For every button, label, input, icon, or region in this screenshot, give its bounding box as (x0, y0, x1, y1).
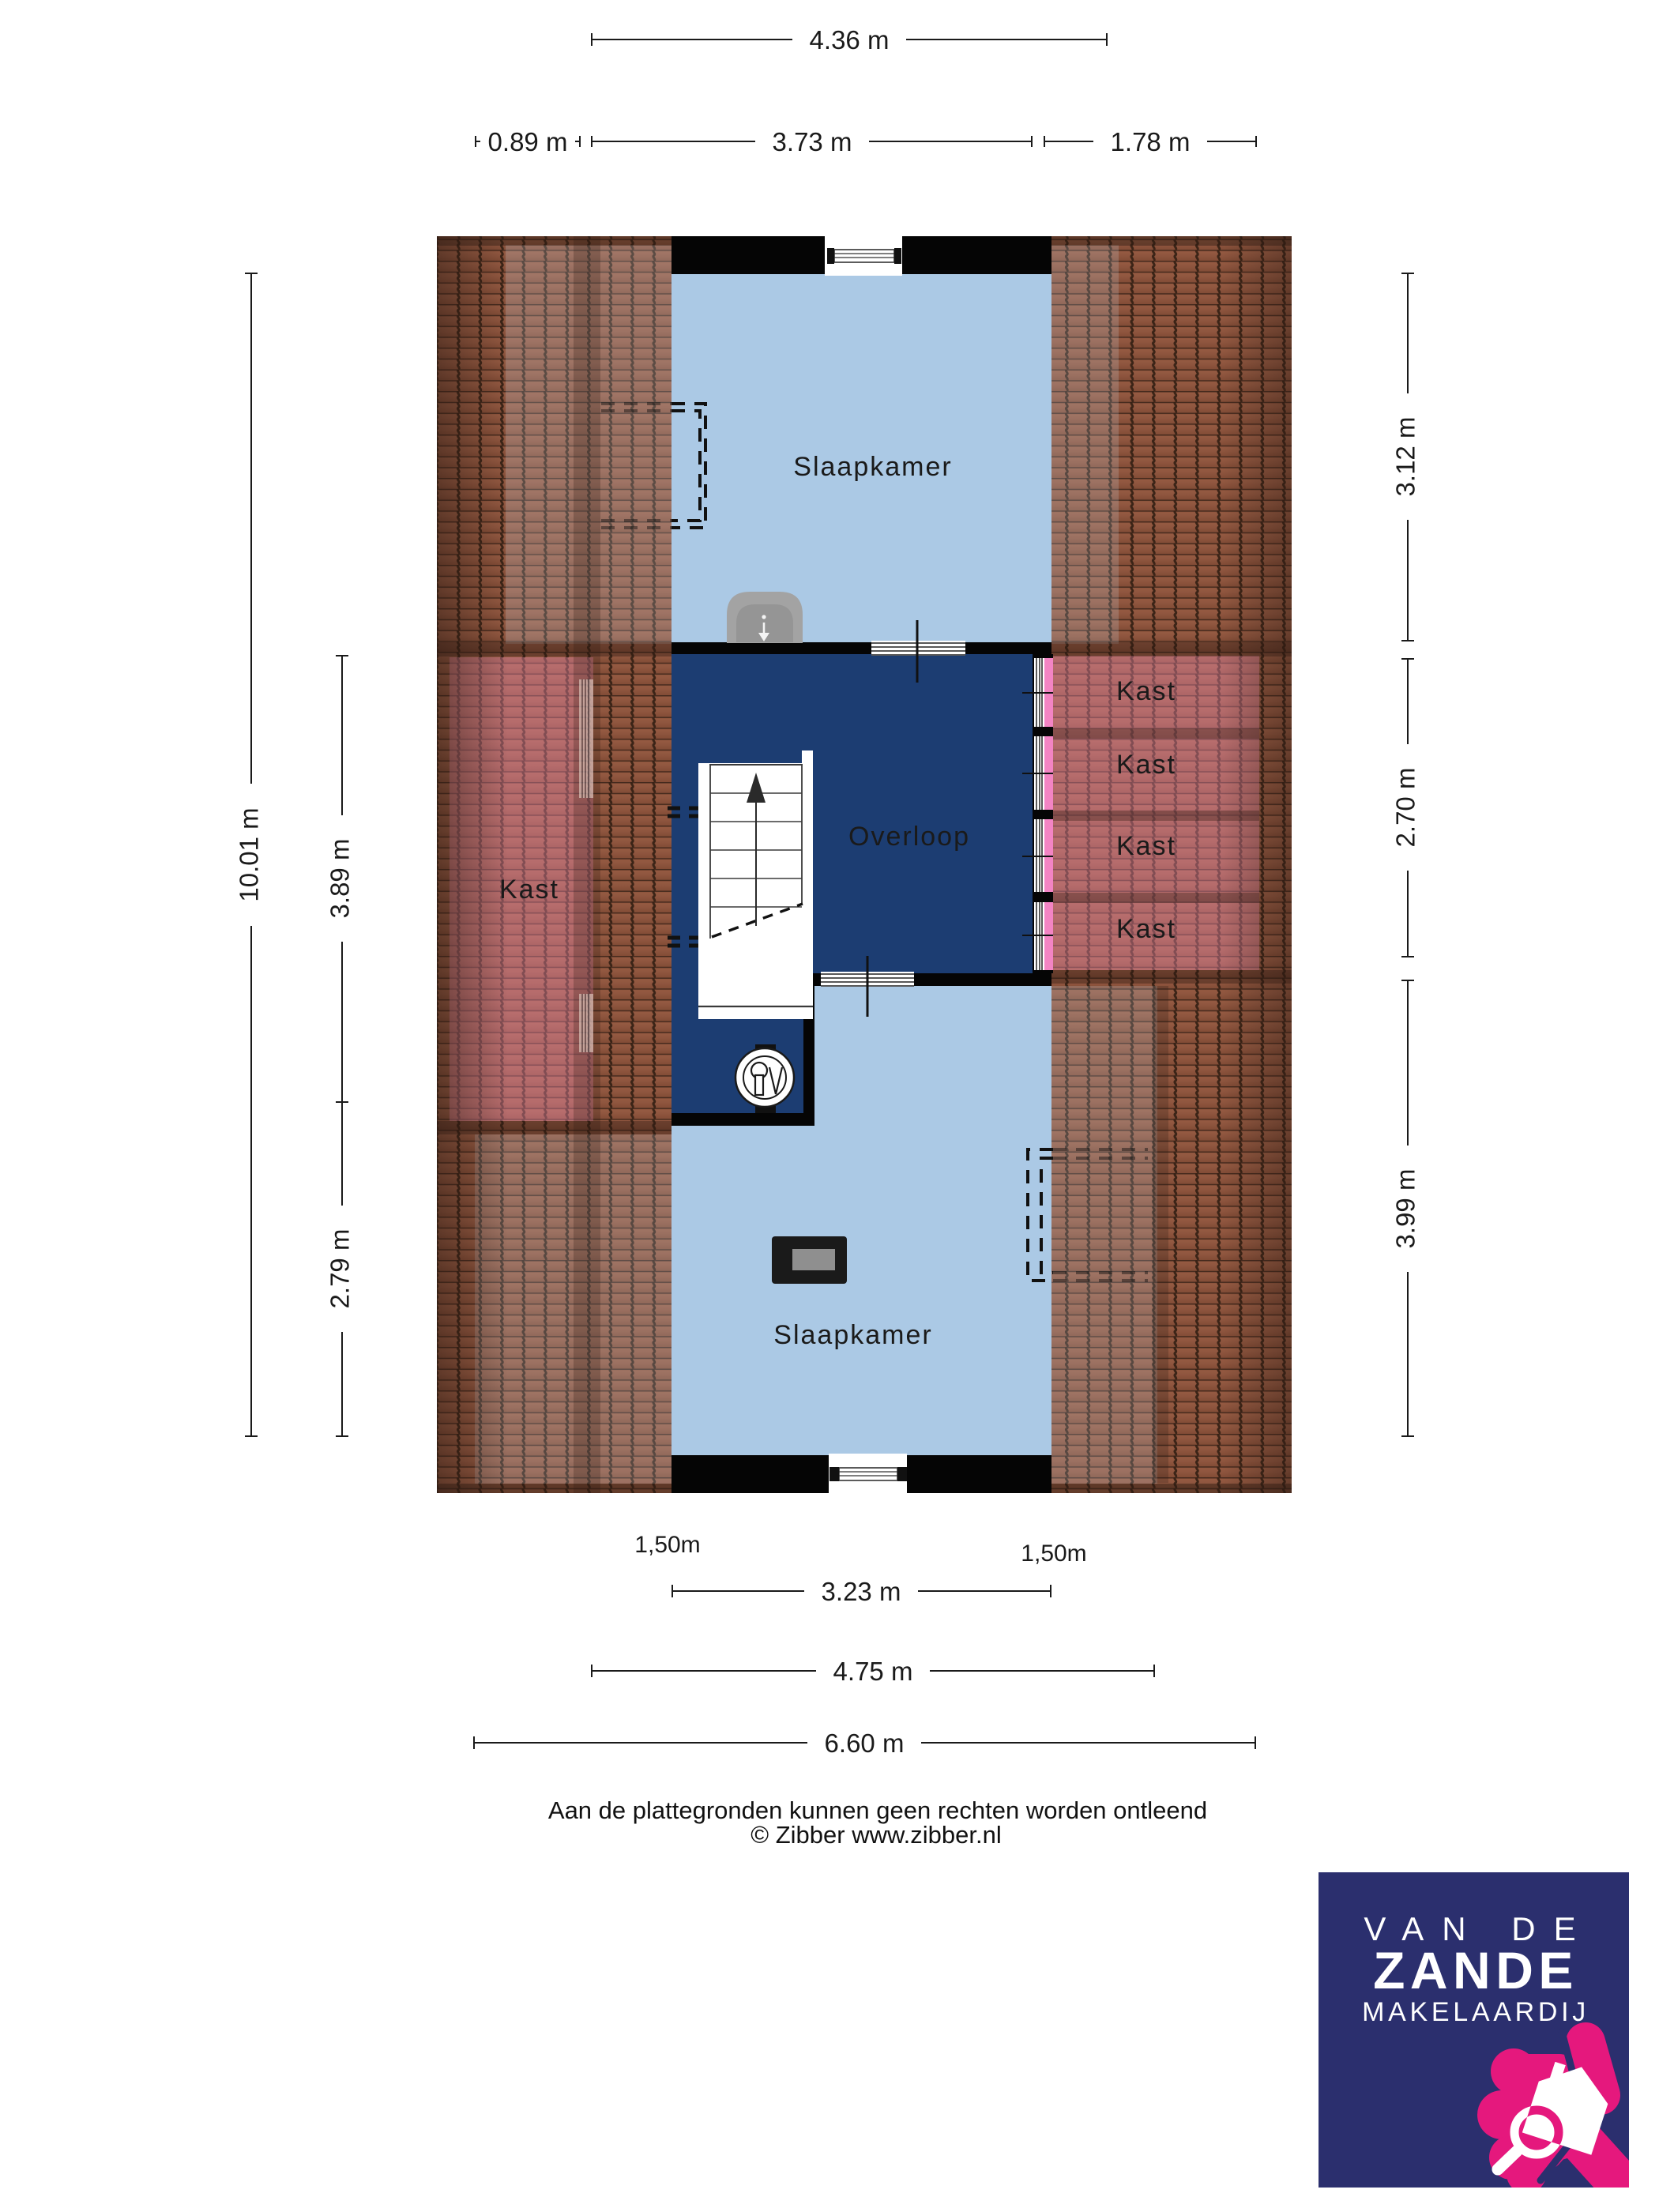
svg-text:2.70 m: 2.70 m (1391, 768, 1420, 848)
svg-text:10.01 m: 10.01 m (235, 807, 264, 901)
svg-text:Overloop: Overloop (848, 822, 970, 852)
svg-text:4.75 m: 4.75 m (833, 1657, 913, 1686)
svg-text:Kast: Kast (1116, 914, 1176, 944)
svg-text:3.23 m: 3.23 m (822, 1577, 901, 1606)
svg-text:Kast: Kast (499, 875, 559, 905)
svg-text:3.73 m: 3.73 m (773, 127, 852, 156)
svg-text:4.36 m: 4.36 m (810, 25, 890, 55)
svg-text:3.99 m: 3.99 m (1391, 1169, 1420, 1249)
svg-text:Slaapkamer: Slaapkamer (773, 1320, 932, 1350)
svg-text:Aan de plattegronden kunnen ge: Aan de plattegronden kunnen geen rechten… (548, 1796, 1207, 1824)
svg-text:Kast: Kast (1116, 831, 1176, 861)
svg-text:Kast: Kast (1116, 750, 1176, 780)
svg-text:ZANDE: ZANDE (1373, 1941, 1578, 1999)
svg-text:MAKELAARDIJ: MAKELAARDIJ (1362, 1997, 1589, 2027)
svg-text:2.79 m: 2.79 m (325, 1229, 355, 1309)
svg-text:Slaapkamer: Slaapkamer (793, 452, 952, 482)
svg-text:© Zibber www.zibber.nl: © Zibber www.zibber.nl (750, 1821, 1001, 1849)
svg-text:0.89 m: 0.89 m (488, 127, 568, 156)
svg-text:1,50m: 1,50m (1021, 1540, 1086, 1567)
svg-text:3.89 m: 3.89 m (325, 839, 355, 919)
svg-text:1,50m: 1,50m (634, 1532, 700, 1558)
svg-text:3.12 m: 3.12 m (1391, 417, 1420, 497)
svg-text:1.78 m: 1.78 m (1111, 127, 1191, 156)
svg-text:6.60 m: 6.60 m (825, 1729, 905, 1758)
svg-text:Kast: Kast (1116, 676, 1176, 706)
